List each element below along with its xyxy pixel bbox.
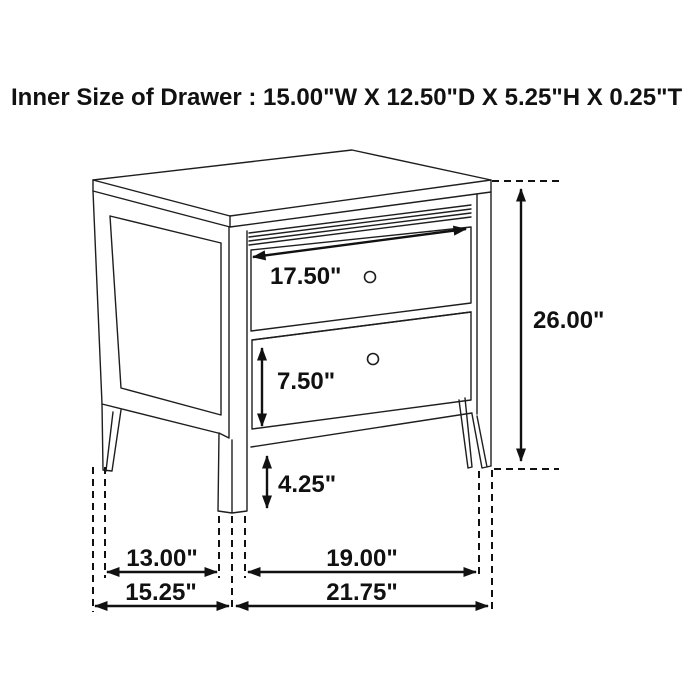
- dim-label-lower-drawer-height: 7.50": [277, 368, 335, 395]
- dim-label-overall-depth: 15.25": [125, 579, 196, 606]
- page-title: Inner Size of Drawer : 15.00"W X 12.50"D…: [11, 84, 682, 111]
- dim-overall-height: 26.00": [521, 189, 604, 461]
- nightstand-drawing: [93, 150, 491, 513]
- dim-label-drawer-width: 17.50": [270, 263, 341, 290]
- dim-label-overall-width: 21.75": [326, 579, 397, 606]
- dim-bottom-clearance: 4.25": [267, 456, 336, 508]
- bottom-drawer-knob: [368, 354, 379, 365]
- back-right-leg: [459, 398, 472, 468]
- dim-overall-depth: 15.25": [95, 579, 229, 606]
- front-left-leg: [218, 227, 247, 513]
- front-right-leg: [472, 192, 491, 468]
- dim-label-depth-between-legs: 13.00": [126, 545, 197, 572]
- dim-arrow-drawer-width: [253, 229, 466, 257]
- top-drawer-knob: [365, 272, 376, 283]
- dim-width-between-legs: 19.00": [248, 545, 476, 572]
- dim-label-bottom-clearance: 4.25": [278, 471, 336, 498]
- dim-label-overall-height: 26.00": [533, 307, 604, 334]
- back-left-leg: [102, 404, 121, 471]
- top-slab-edge: [93, 180, 491, 227]
- dim-depth-between-legs: 13.00": [107, 545, 217, 572]
- dimension-diagram: Inner Size of Drawer : 15.00"W X 12.50"D…: [0, 0, 700, 700]
- dim-lower-drawer-height: 7.50": [262, 348, 335, 426]
- bottom-rail: [251, 413, 472, 447]
- dim-label-width-between-legs: 19.00": [326, 545, 397, 572]
- left-side-panel: [93, 191, 221, 433]
- dimension-annotations: 17.50" 7.50" 4.25" 26.00" 13.00" 19.00" …: [95, 189, 604, 606]
- dim-overall-width: 21.75": [236, 579, 488, 606]
